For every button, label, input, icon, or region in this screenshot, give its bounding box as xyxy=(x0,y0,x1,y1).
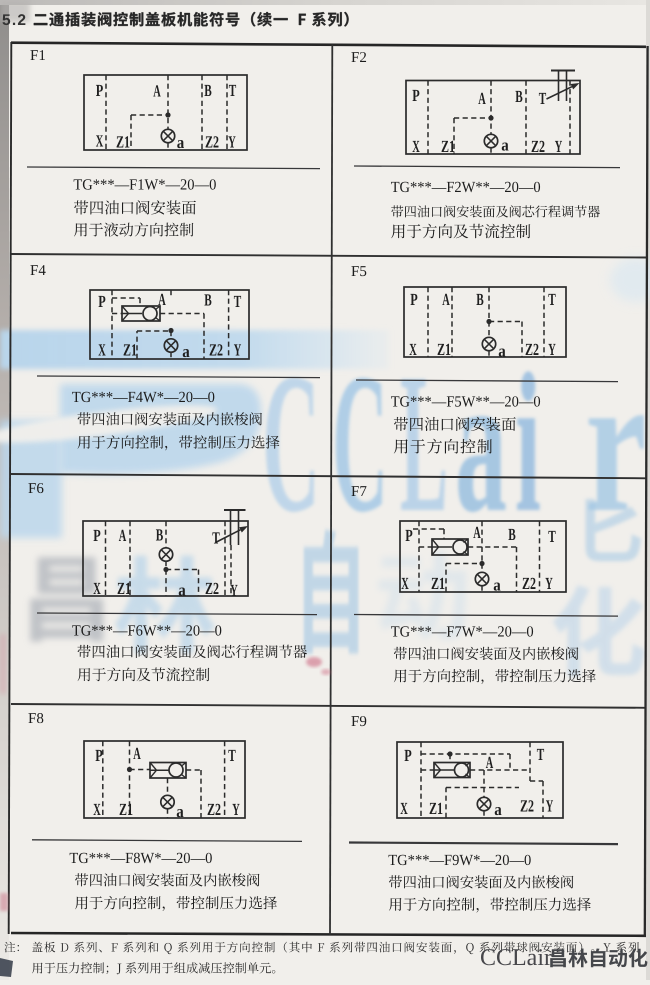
svg-text:TG***—F7W*—20—0: TG***—F7W*—20—0 xyxy=(391,624,534,641)
svg-text:X: X xyxy=(412,137,420,156)
svg-text:A: A xyxy=(473,523,481,542)
svg-text:F1: F1 xyxy=(30,48,46,64)
svg-text:TG***—F4W*—20—0: TG***—F4W*—20—0 xyxy=(72,389,215,406)
svg-text:P: P xyxy=(404,746,412,765)
svg-text:A: A xyxy=(153,82,161,101)
svg-text:a: a xyxy=(494,800,502,819)
svg-text:Z2: Z2 xyxy=(525,340,539,359)
svg-text:T: T xyxy=(228,746,236,765)
svg-text:a: a xyxy=(178,581,186,600)
svg-text:Y: Y xyxy=(548,340,556,359)
svg-text:CCLair: CCLair xyxy=(480,945,552,971)
svg-text:P: P xyxy=(405,526,413,545)
svg-text:Y: Y xyxy=(234,341,242,360)
svg-text:TG***—F1W*—20—0: TG***—F1W*—20—0 xyxy=(73,177,216,194)
svg-text:a: a xyxy=(182,342,190,361)
svg-text:X: X xyxy=(98,341,106,360)
svg-text:Z1: Z1 xyxy=(431,574,445,593)
svg-text:F7: F7 xyxy=(351,484,367,500)
svg-text:Y: Y xyxy=(228,133,236,152)
svg-text:Z2: Z2 xyxy=(205,579,219,598)
svg-text:Y: Y xyxy=(230,581,238,600)
svg-text:Z2: Z2 xyxy=(209,341,223,360)
svg-text:T: T xyxy=(548,527,556,546)
svg-text:a: a xyxy=(177,133,185,152)
svg-text:X: X xyxy=(409,340,417,359)
svg-text:TG***—F9W*—20—0: TG***—F9W*—20—0 xyxy=(388,852,531,869)
svg-text:a: a xyxy=(176,802,184,821)
svg-text:T: T xyxy=(229,81,237,100)
svg-text:Z1: Z1 xyxy=(437,340,451,359)
svg-text:F4: F4 xyxy=(30,263,46,279)
svg-text:F2: F2 xyxy=(351,50,367,66)
svg-text:a: a xyxy=(501,136,509,155)
svg-text:Z2: Z2 xyxy=(522,574,536,593)
svg-text:P: P xyxy=(98,292,106,311)
svg-text:Z2: Z2 xyxy=(520,797,534,816)
svg-text:5.2: 5.2 xyxy=(2,12,27,29)
svg-text:Z1: Z1 xyxy=(429,799,443,818)
svg-text:F9: F9 xyxy=(351,714,367,730)
svg-text:T: T xyxy=(212,529,220,548)
svg-text:A: A xyxy=(158,290,166,309)
svg-text:TG***—F2W**—20—0: TG***—F2W**—20—0 xyxy=(391,179,541,196)
svg-text:Y: Y xyxy=(555,137,563,156)
svg-text:Y: Y xyxy=(545,574,553,593)
svg-text:B: B xyxy=(204,81,212,100)
svg-text:T: T xyxy=(234,292,242,311)
svg-text:Z1: Z1 xyxy=(116,133,130,152)
svg-text:B: B xyxy=(515,87,523,106)
svg-text:a: a xyxy=(493,576,501,595)
svg-text:A: A xyxy=(478,89,486,108)
svg-text:Z1: Z1 xyxy=(117,579,131,598)
svg-text:Y: Y xyxy=(232,800,240,819)
svg-text:X: X xyxy=(400,799,408,818)
svg-text:B: B xyxy=(156,526,164,545)
svg-text:TG***—F8W*—20—0: TG***—F8W*—20—0 xyxy=(69,850,212,867)
svg-text:F8: F8 xyxy=(28,711,44,727)
svg-text:B: B xyxy=(476,290,484,309)
svg-text:X: X xyxy=(93,579,101,598)
svg-text:P: P xyxy=(93,526,101,545)
svg-text:X: X xyxy=(401,574,409,593)
svg-text:Y: Y xyxy=(546,797,554,816)
svg-text:P: P xyxy=(412,86,420,105)
svg-text:C: C xyxy=(262,333,320,554)
svg-text:A: A xyxy=(486,753,494,772)
svg-text:Z2: Z2 xyxy=(205,133,219,152)
svg-text:a: a xyxy=(498,342,506,361)
svg-text:F5: F5 xyxy=(351,264,367,280)
svg-text:Z2: Z2 xyxy=(207,800,221,819)
svg-text:TG***—F5W**—20—0: TG***—F5W**—20—0 xyxy=(391,394,541,411)
svg-text:TG***—F6W**—20—0: TG***—F6W**—20—0 xyxy=(72,623,222,640)
svg-text:B: B xyxy=(508,525,516,544)
svg-text:P: P xyxy=(410,290,418,309)
svg-text:P: P xyxy=(96,81,104,100)
svg-text:T: T xyxy=(537,745,545,764)
svg-text:X: X xyxy=(96,132,104,151)
svg-text:Z2: Z2 xyxy=(531,137,545,156)
svg-text:A: A xyxy=(119,526,127,545)
svg-text:T: T xyxy=(548,290,556,309)
svg-text:Z1: Z1 xyxy=(123,341,137,360)
svg-text:F6: F6 xyxy=(28,481,44,497)
svg-text:T: T xyxy=(539,89,547,108)
svg-text:C: C xyxy=(332,333,388,554)
svg-text:Z1: Z1 xyxy=(441,137,455,156)
svg-text:A: A xyxy=(442,290,450,309)
svg-text:A: A xyxy=(133,744,141,763)
svg-text:Z1: Z1 xyxy=(119,800,133,819)
svg-text:X: X xyxy=(93,800,101,819)
svg-text:P: P xyxy=(95,746,103,765)
svg-text:B: B xyxy=(204,291,212,310)
